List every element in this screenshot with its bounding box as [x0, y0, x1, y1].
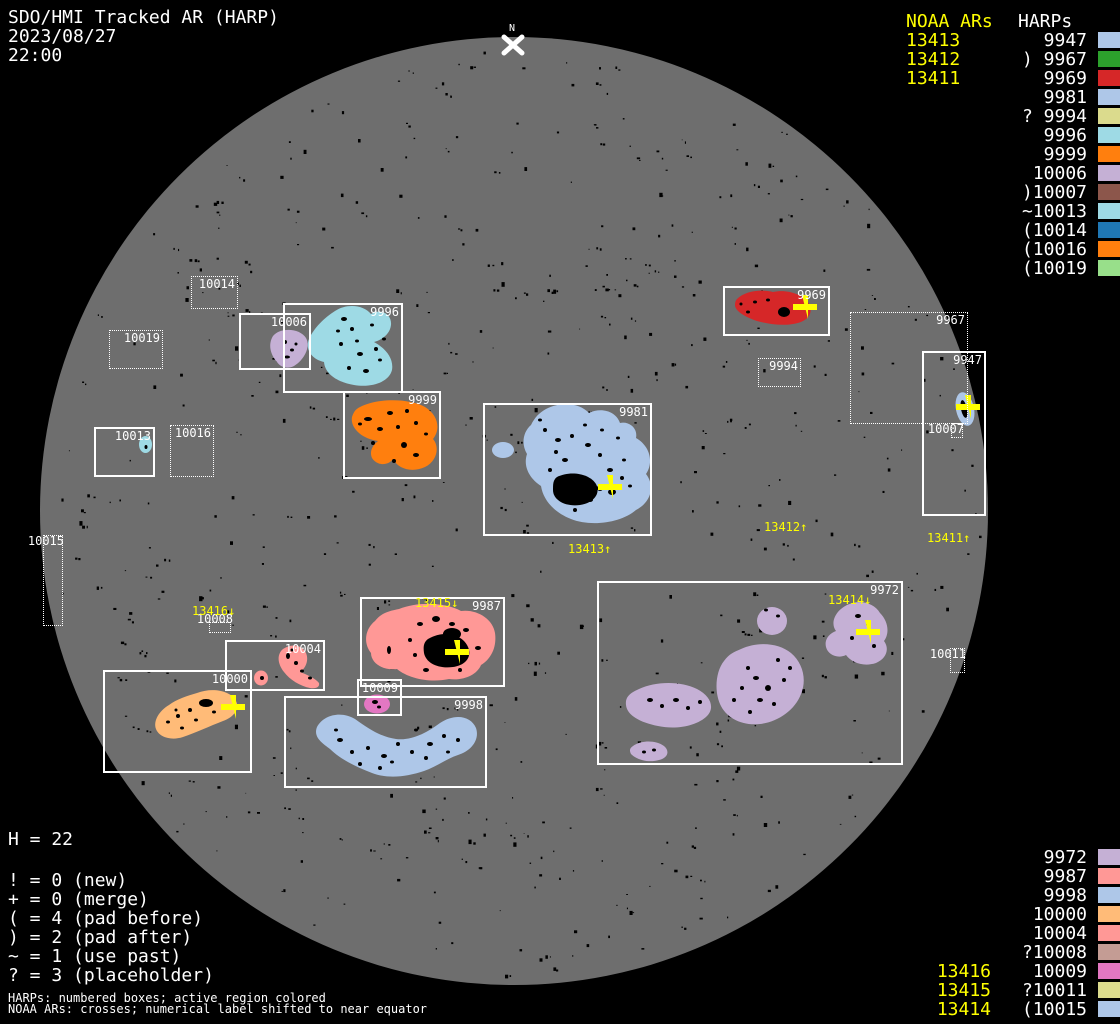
harp-box-label: 9996 — [370, 306, 399, 318]
harp-number: 10004 — [1033, 924, 1087, 943]
color-swatch — [1098, 32, 1120, 48]
harp-box-label: 10011 — [930, 648, 966, 660]
harp-box-10019: 10019 — [109, 330, 163, 369]
harp-list-item: 9996 — [987, 126, 1120, 145]
time-label: 22:00 — [8, 46, 279, 65]
harps-column-header: HARPs — [1018, 12, 1072, 31]
harp-box-label: 9947 — [953, 354, 982, 366]
harp-number: ) 9967 — [1022, 50, 1087, 69]
harp-box-9969: 9969 — [723, 286, 830, 336]
harp-number: (10014 — [1022, 221, 1087, 240]
noaa-list-bottom: 134161341513414 — [891, 962, 991, 1019]
harp-list-item: ~10013 — [987, 202, 1120, 221]
harp-box-9994: 9994 — [758, 358, 801, 387]
harp-box-label: 10013 — [115, 430, 151, 442]
harp-box-label: 9998 — [454, 699, 483, 711]
harp-number: ? 9994 — [1022, 107, 1087, 126]
color-swatch — [1098, 203, 1120, 219]
noaa-ar-item: 13416 — [891, 962, 991, 981]
harp-list-item: 9969 — [987, 69, 1120, 88]
color-swatch — [1098, 222, 1120, 238]
harp-box-label: 9972 — [870, 584, 899, 596]
color-swatch — [1098, 906, 1120, 922]
harp-list-item: ? 9994 — [987, 107, 1120, 126]
solar-harp-map: SDO/HMI Tracked AR (HARP) 2023/08/27 22:… — [0, 0, 1120, 1024]
harp-list-item: 9987 — [987, 867, 1120, 886]
harp-box-9998: 9998 — [284, 696, 487, 788]
noaa-column-header: NOAA ARs — [906, 12, 993, 31]
harp-list-item: (10016 — [987, 240, 1120, 259]
harp-box-label: 10014 — [199, 278, 235, 290]
color-swatch — [1098, 963, 1120, 979]
harp-list-item: (10019 — [987, 259, 1120, 278]
harp-list-item: 10009 — [987, 962, 1120, 981]
harp-list-item: 10006 — [987, 164, 1120, 183]
harp-number: 9969 — [1044, 69, 1087, 88]
legend-item: ( = 4 (pad before) — [8, 909, 214, 928]
harp-box-9972: 9972 — [597, 581, 903, 765]
harp-box-label: 9981 — [619, 406, 648, 418]
harp-number: ?10011 — [1022, 981, 1087, 1000]
harp-number: 9999 — [1044, 145, 1087, 164]
harp-box-label: 9969 — [797, 289, 826, 301]
harp-list-item: )10007 — [987, 183, 1120, 202]
harp-number: 9996 — [1044, 126, 1087, 145]
legend-items: ! = 0 (new)+ = 0 (merge)( = 4 (pad befor… — [8, 871, 214, 985]
harp-number: 9972 — [1044, 848, 1087, 867]
harp-box-label: 10015 — [28, 535, 64, 547]
legend-item: ) = 2 (pad after) — [8, 928, 214, 947]
color-swatch — [1098, 89, 1120, 105]
color-swatch — [1098, 260, 1120, 276]
color-swatch — [1098, 887, 1120, 903]
color-swatch — [1098, 925, 1120, 941]
color-swatch — [1098, 849, 1120, 865]
harp-box-10016: 10016 — [170, 425, 214, 477]
noaa-disk-label: 13412↑ — [764, 521, 807, 533]
noaa-ar-item: 13413 — [906, 31, 960, 50]
harp-list-item: 9999 — [987, 145, 1120, 164]
color-swatch — [1098, 241, 1120, 257]
harp-list-item: 9947 — [987, 31, 1120, 50]
harp-number: 9998 — [1044, 886, 1087, 905]
harp-number: 9987 — [1044, 867, 1087, 886]
harp-box-10007: 10007 — [951, 423, 963, 438]
harp-list-item: 10004 — [987, 924, 1120, 943]
harp-box-label: 9987 — [472, 600, 501, 612]
harp-box-label: 9967 — [936, 314, 965, 326]
harp-list-item: (10015 — [987, 1000, 1120, 1019]
harp-box-label: 9999 — [408, 394, 437, 406]
color-swatch — [1098, 146, 1120, 162]
color-swatch — [1098, 165, 1120, 181]
harp-list-item: 9972 — [987, 848, 1120, 867]
legend-item: ~ = 1 (use past) — [8, 947, 214, 966]
harp-box-label: 10019 — [124, 332, 160, 344]
harp-number: (10016 — [1022, 240, 1087, 259]
noaa-list-top: 134131341213411 — [906, 31, 960, 88]
harp-list-item: ) 9967 — [987, 50, 1120, 69]
color-swatch — [1098, 1001, 1120, 1017]
noaa-ar-item: 13415 — [891, 981, 991, 1000]
harp-list-item: (10014 — [987, 221, 1120, 240]
harp-number: (10019 — [1022, 259, 1087, 278]
harp-box-label: 10004 — [285, 643, 321, 655]
harp-box-10011: 10011 — [950, 648, 965, 673]
legend-item: + = 0 (merge) — [8, 890, 214, 909]
harp-count-label: H = 22 — [8, 830, 73, 849]
color-swatch — [1098, 868, 1120, 884]
color-swatch — [1098, 70, 1120, 86]
noaa-disk-label: 13414↓ — [828, 594, 871, 606]
harp-list-item: ?10008 — [987, 943, 1120, 962]
harp-number: ~10013 — [1022, 202, 1087, 221]
harp-box-10014: 10014 — [191, 276, 238, 309]
noaa-disk-label: 13413↑ — [568, 543, 611, 555]
footnote-noaa: NOAA ARs: crosses; numerical label shift… — [8, 1004, 427, 1015]
harp-number: (10015 — [1022, 1000, 1087, 1019]
harp-list-item: 9981 — [987, 88, 1120, 107]
harp-box-10013: 10013 — [94, 427, 155, 477]
noaa-ar-item: 13412 — [906, 50, 960, 69]
legend-item: ? = 3 (placeholder) — [8, 966, 214, 985]
color-swatch — [1098, 944, 1120, 960]
harp-list-item: 10000 — [987, 905, 1120, 924]
harp-box-9996: 9996 — [283, 303, 403, 393]
noaa-disk-label: 13416↓ — [192, 605, 235, 617]
harp-box-9981: 9981 — [483, 403, 652, 536]
harp-box-10008: 10008 — [209, 622, 231, 633]
noaa-ar-item: 13414 — [891, 1000, 991, 1019]
north-label: N — [509, 24, 515, 34]
harp-box-label: 10016 — [175, 427, 211, 439]
page-title: SDO/HMI Tracked AR (HARP) — [8, 8, 279, 27]
harp-box-10015: 10015 — [43, 535, 63, 626]
legend-item: ! = 0 (new) — [8, 871, 214, 890]
date-label: 2023/08/27 — [8, 27, 279, 46]
color-swatch — [1098, 108, 1120, 124]
color-swatch — [1098, 184, 1120, 200]
harp-box-label: 10000 — [212, 673, 248, 685]
harp-number: 10009 — [1033, 962, 1087, 981]
harp-list-item: ?10011 — [987, 981, 1120, 1000]
harp-box-label: 9994 — [769, 360, 798, 372]
noaa-ar-item: 13411 — [906, 69, 960, 88]
harp-number: ?10008 — [1022, 943, 1087, 962]
harp-number: )10007 — [1022, 183, 1087, 202]
noaa-disk-label: 13411↑ — [927, 532, 970, 544]
harp-box-10000: 10000 — [103, 670, 252, 773]
noaa-disk-label: 13415↓ — [415, 597, 458, 609]
harp-box-9987: 9987 — [360, 597, 505, 687]
color-swatch — [1098, 982, 1120, 998]
harp-box-9999: 9999 — [343, 391, 441, 479]
harp-box-label: 10007 — [928, 423, 964, 435]
harp-box-label: 10009 — [362, 682, 398, 694]
harp-number: 10000 — [1033, 905, 1087, 924]
color-swatch — [1098, 127, 1120, 143]
harp-list-item: 9998 — [987, 886, 1120, 905]
harp-list-bottom: 9972998799981000010004?1000810009?10011(… — [987, 848, 1120, 1019]
harp-list-top: 9947) 996799699981? 99949996999910006)10… — [987, 31, 1120, 278]
color-swatch — [1098, 51, 1120, 67]
harp-number: 9981 — [1044, 88, 1087, 107]
title-block: SDO/HMI Tracked AR (HARP) 2023/08/27 22:… — [8, 8, 279, 65]
harp-number: 9947 — [1044, 31, 1087, 50]
harp-number: 10006 — [1033, 164, 1087, 183]
